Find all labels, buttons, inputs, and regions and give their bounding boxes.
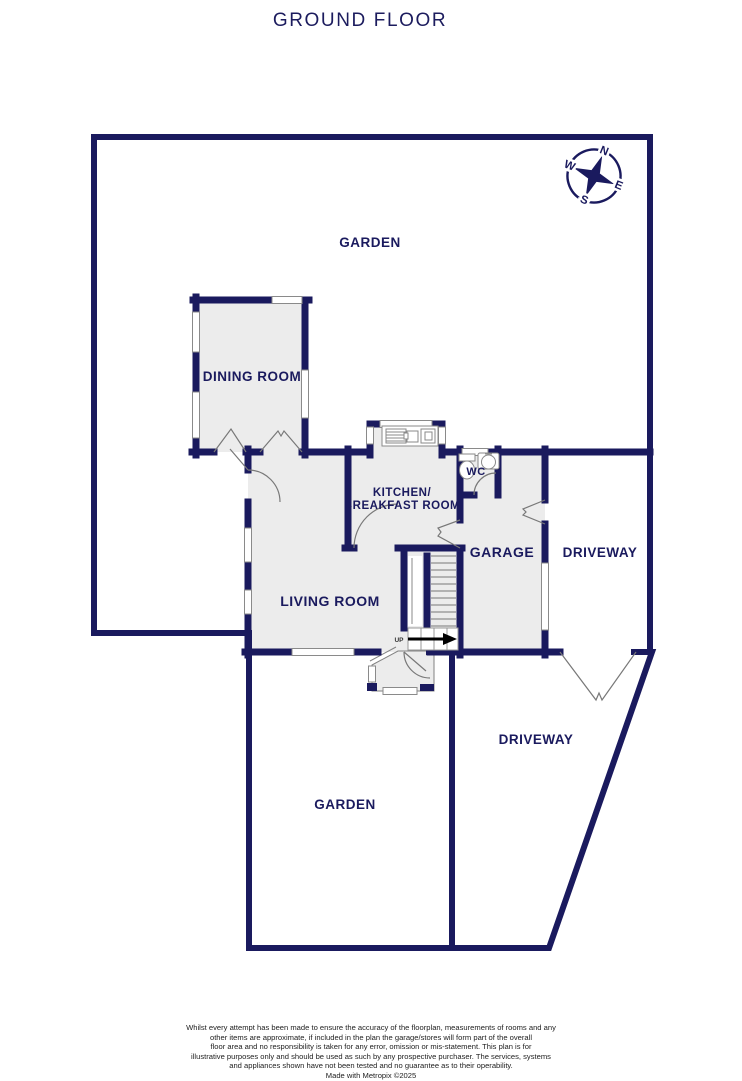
porch-bottom-window: [383, 688, 417, 695]
driveway-upper-label: DRIVEWAY: [563, 545, 638, 560]
dining-right-window: [302, 370, 309, 418]
compass-w: W: [562, 158, 577, 173]
compass-n: N: [598, 144, 610, 158]
disclaimer: Whilst every attempt has been made to en…: [0, 1023, 742, 1081]
kitchen-counter: [382, 426, 438, 446]
kitchen-bay-left-window: [367, 427, 374, 444]
disclaimer-line: Whilst every attempt has been made to en…: [0, 1023, 742, 1033]
disclaimer-line: and appliances shown have not been teste…: [0, 1061, 742, 1071]
porch-left-window: [369, 666, 376, 682]
kitchen-label-line2: BREAKFAST ROOM: [344, 500, 460, 512]
garden-bottom-label: GARDEN: [314, 797, 376, 812]
kitchen-bay-right-window: [439, 427, 446, 444]
sink-basin: [407, 431, 418, 442]
living-left-window-2: [245, 590, 252, 614]
driveway-gate: [560, 652, 636, 700]
compass-icon: N E S W: [552, 134, 634, 218]
garage-door-opening: [542, 563, 549, 630]
stairs-up-label: UP: [394, 637, 404, 644]
sink-tap: [404, 433, 408, 439]
kitchen-label-line1: KITCHEN/: [373, 487, 432, 499]
made-with-credit: Made with Metropix ©2025: [0, 1071, 742, 1081]
compass-star: [565, 147, 622, 204]
disclaimer-line: floor area and no responsibility is take…: [0, 1042, 742, 1052]
driveway-lower-label: DRIVEWAY: [499, 732, 574, 747]
living-left-window-1: [245, 528, 252, 562]
dining-left-window-1: [193, 312, 200, 352]
dining-top-window: [272, 297, 302, 304]
compass-s: S: [578, 194, 590, 208]
dining-left-window-2: [193, 392, 200, 438]
garden-top-label: GARDEN: [339, 235, 401, 250]
living-bottom-window: [292, 649, 354, 656]
living-room-label: LIVING ROOM: [280, 593, 380, 609]
disclaimer-line: other items are approximate, if included…: [0, 1033, 742, 1043]
floorplan: UP GARDEN DINING ROOM KITCHEN/ BREAKFAST…: [0, 0, 742, 1080]
disclaimer-line: illustrative purposes only and should be…: [0, 1052, 742, 1062]
dining-room-label: DINING ROOM: [203, 369, 302, 384]
garage-label: GARAGE: [470, 544, 534, 560]
toilet-cistern: [459, 454, 475, 461]
wc-label: WC: [466, 466, 485, 478]
